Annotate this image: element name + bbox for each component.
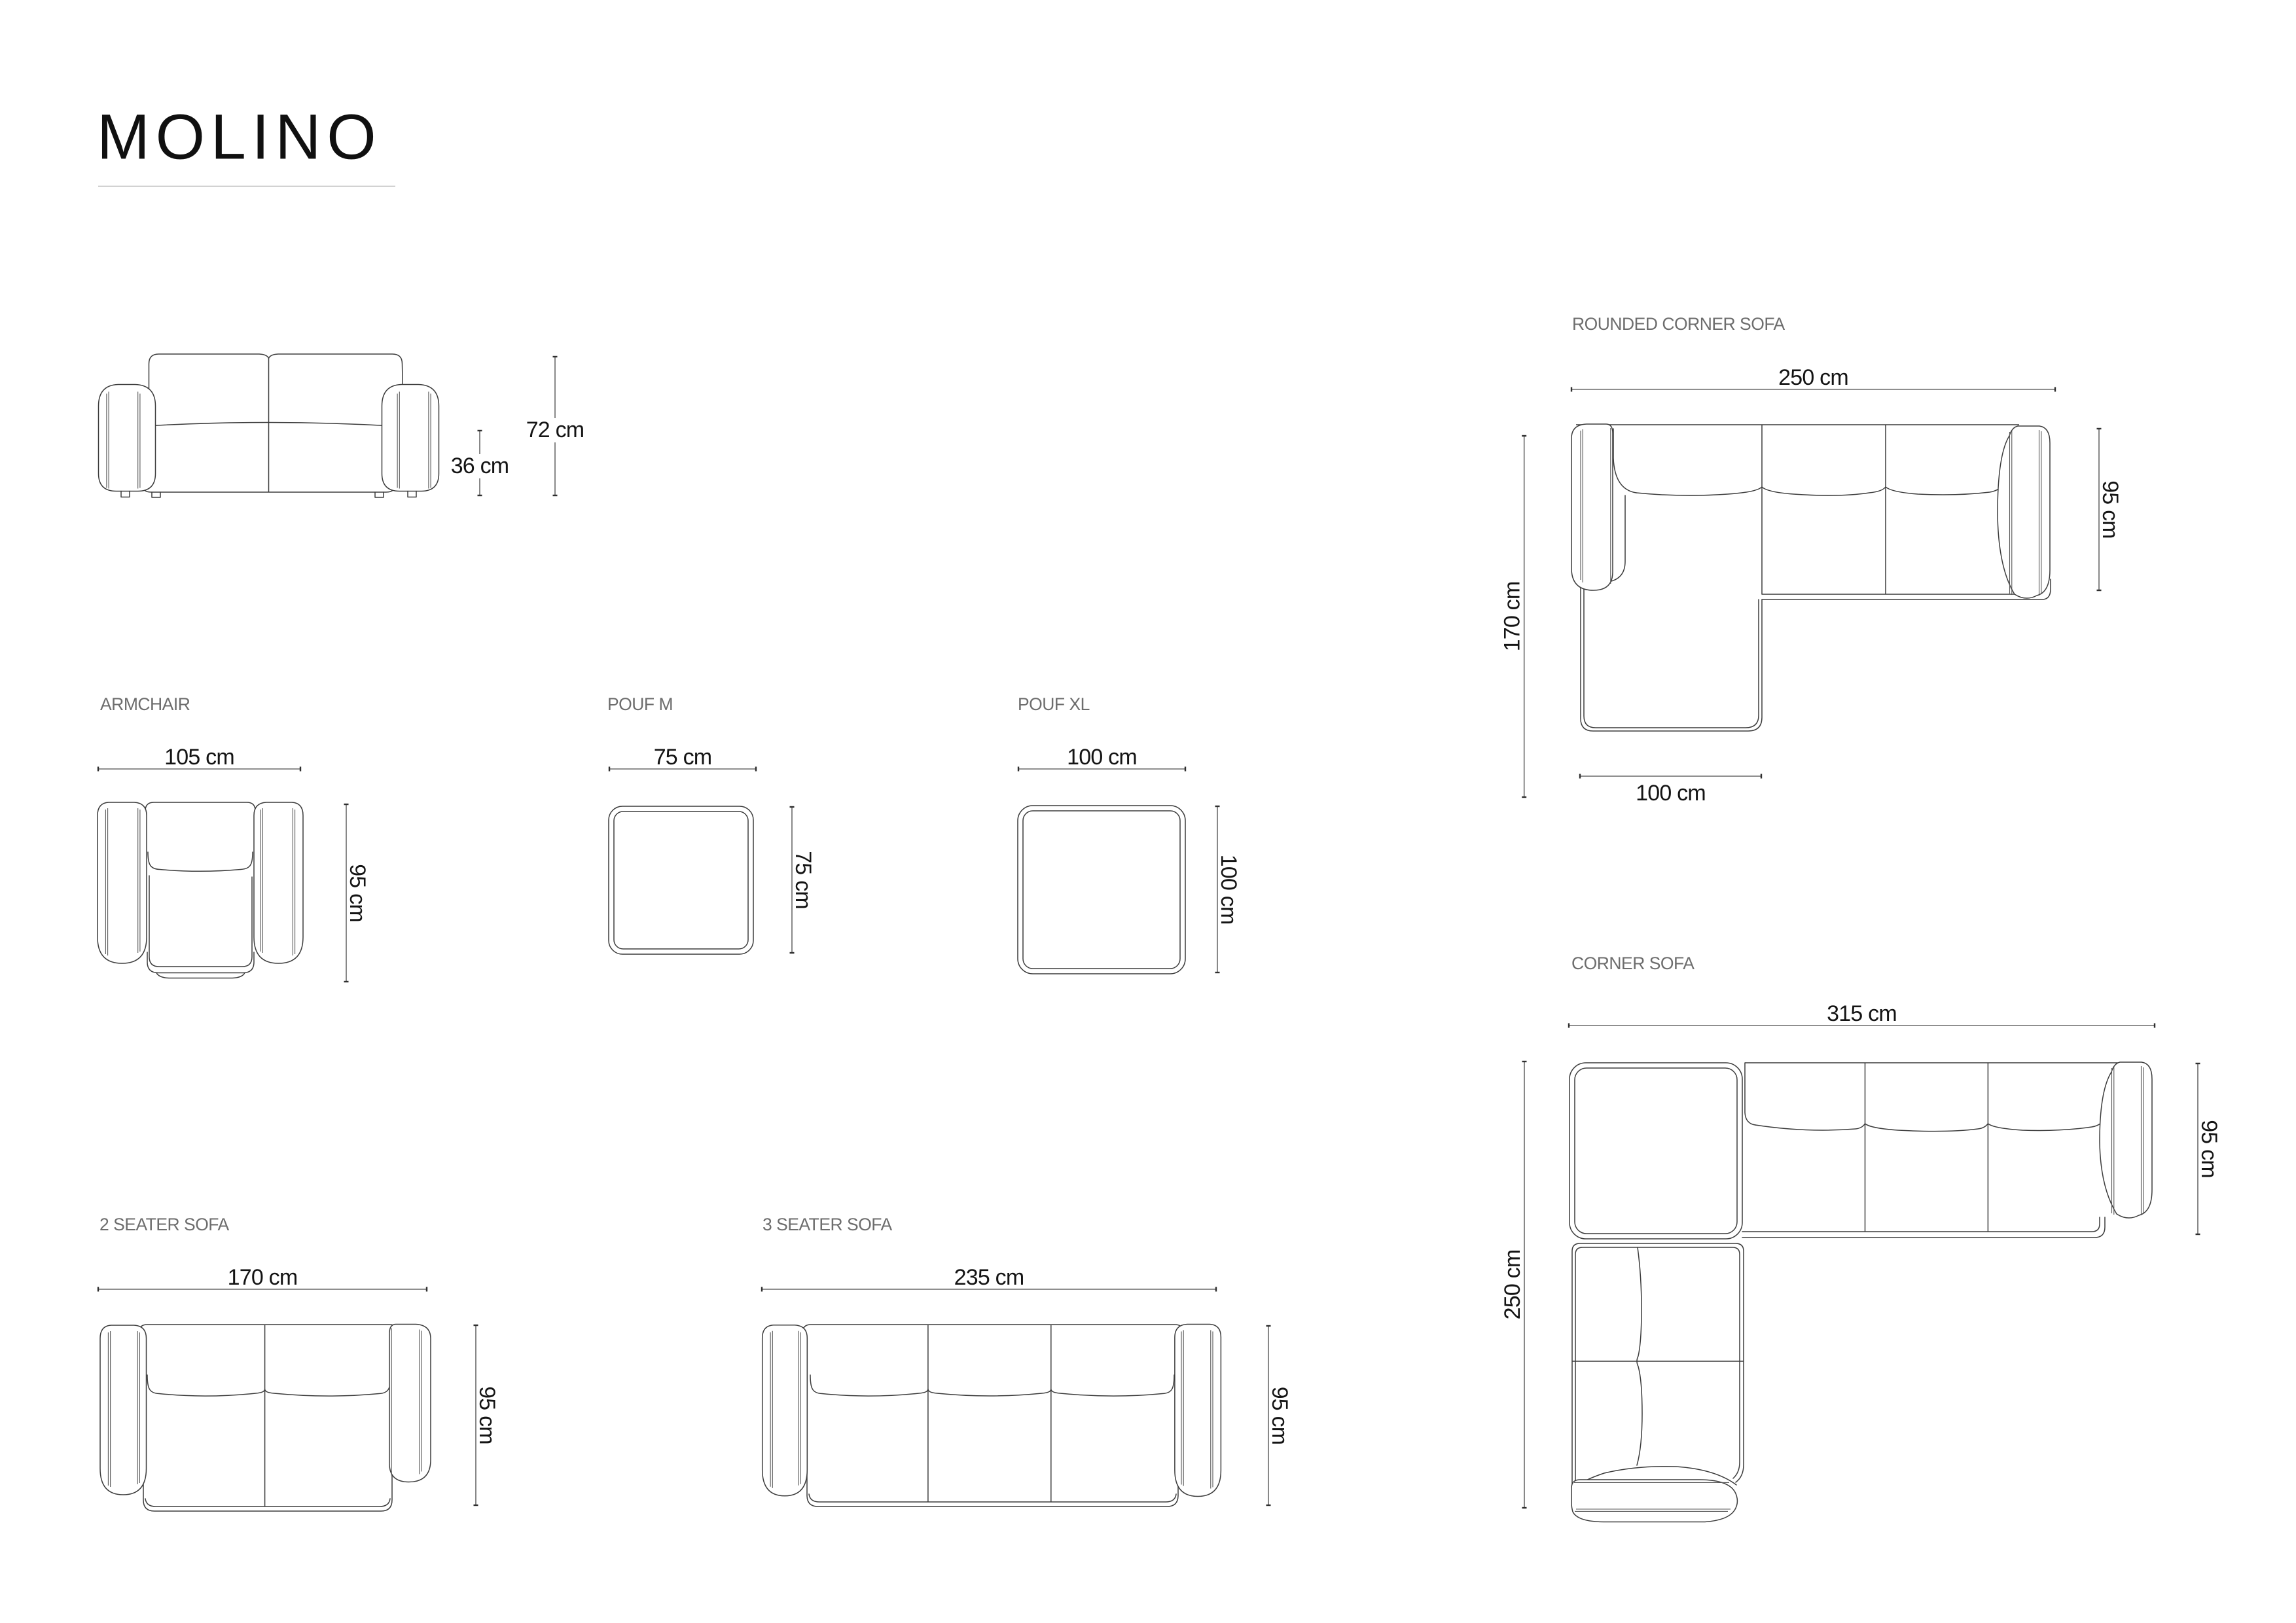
- svg-text:72 cm: 72 cm: [526, 418, 584, 442]
- svg-text:235 cm: 235 cm: [954, 1265, 1024, 1290]
- svg-text:100 cm: 100 cm: [1636, 781, 1706, 806]
- svg-text:75 cm: 75 cm: [791, 851, 816, 909]
- svg-text:95 cm: 95 cm: [2197, 1120, 2221, 1178]
- svg-text:POUF M: POUF M: [607, 694, 673, 714]
- svg-text:100 cm: 100 cm: [1216, 855, 1241, 925]
- svg-text:CORNER SOFA: CORNER SOFA: [1571, 954, 1695, 973]
- svg-text:250 cm: 250 cm: [1778, 365, 1848, 390]
- svg-text:100 cm: 100 cm: [1067, 745, 1137, 770]
- svg-text:315 cm: 315 cm: [1827, 1001, 1897, 1026]
- svg-text:36 cm: 36 cm: [451, 454, 509, 478]
- svg-text:POUF XL: POUF XL: [1018, 694, 1090, 714]
- svg-text:95 cm: 95 cm: [2098, 480, 2123, 539]
- svg-text:75 cm: 75 cm: [654, 745, 712, 770]
- svg-text:2 SEATER SOFA: 2 SEATER SOFA: [99, 1215, 230, 1234]
- svg-text:ARMCHAIR: ARMCHAIR: [100, 694, 190, 714]
- svg-text:170 cm: 170 cm: [1500, 582, 1525, 652]
- svg-text:MOLINO: MOLINO: [97, 101, 382, 173]
- svg-text:105 cm: 105 cm: [164, 745, 234, 770]
- svg-text:170 cm: 170 cm: [228, 1265, 298, 1290]
- svg-text:3 SEATER SOFA: 3 SEATER SOFA: [762, 1215, 893, 1234]
- svg-text:ROUNDED CORNER SOFA: ROUNDED CORNER SOFA: [1572, 314, 1785, 334]
- svg-text:95 cm: 95 cm: [1267, 1387, 1292, 1445]
- svg-text:95 cm: 95 cm: [345, 864, 370, 922]
- svg-text:95 cm: 95 cm: [475, 1386, 499, 1444]
- svg-text:250 cm: 250 cm: [1500, 1250, 1525, 1320]
